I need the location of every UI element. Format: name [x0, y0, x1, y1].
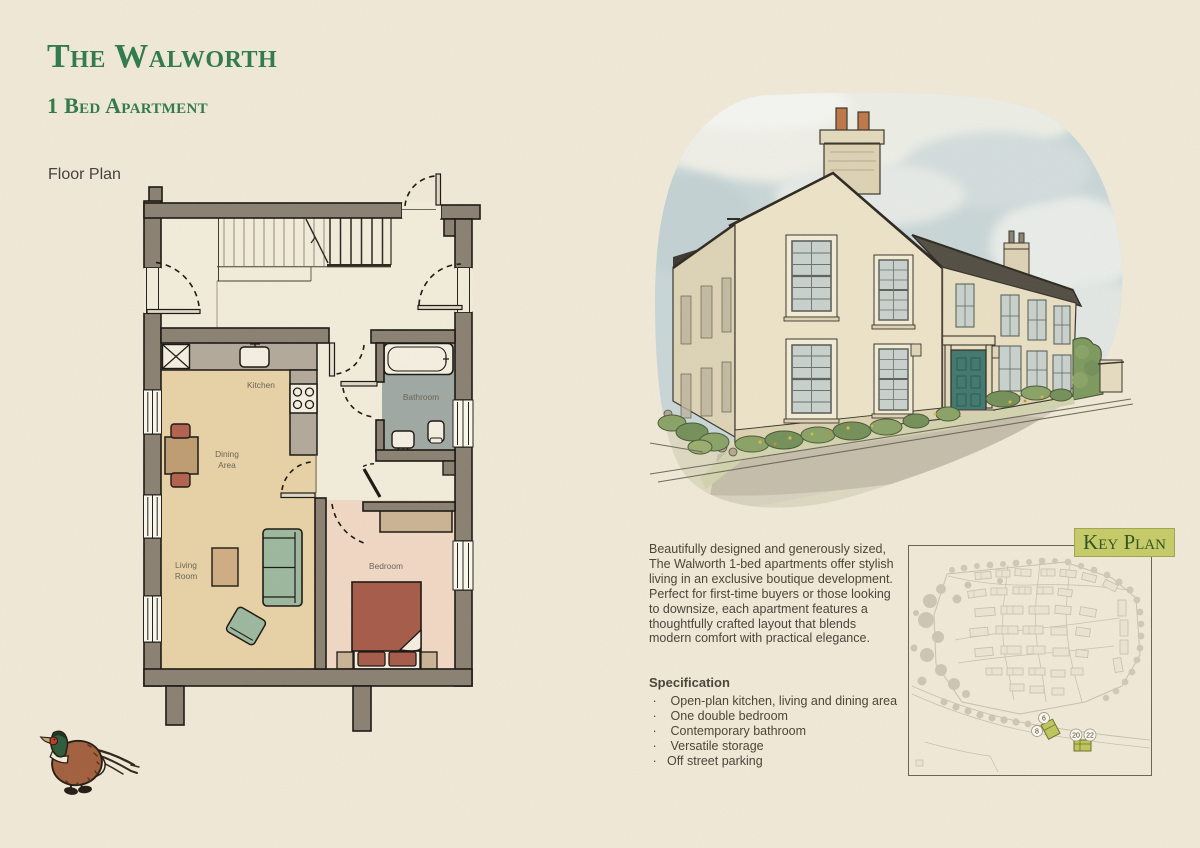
svg-text:Area: Area [218, 460, 236, 470]
svg-text:Bathroom: Bathroom [403, 392, 439, 402]
svg-text:Living: Living [175, 560, 197, 570]
svg-text:6: 6 [1042, 716, 1046, 723]
svg-text:20: 20 [1072, 733, 1080, 740]
svg-text:Bedroom: Bedroom [369, 561, 403, 571]
svg-text:Kitchen: Kitchen [247, 380, 275, 390]
svg-text:8: 8 [1035, 729, 1039, 736]
svg-text:Dining: Dining [215, 449, 239, 459]
svg-text:22: 22 [1086, 733, 1094, 740]
svg-text:Room: Room [175, 571, 197, 581]
